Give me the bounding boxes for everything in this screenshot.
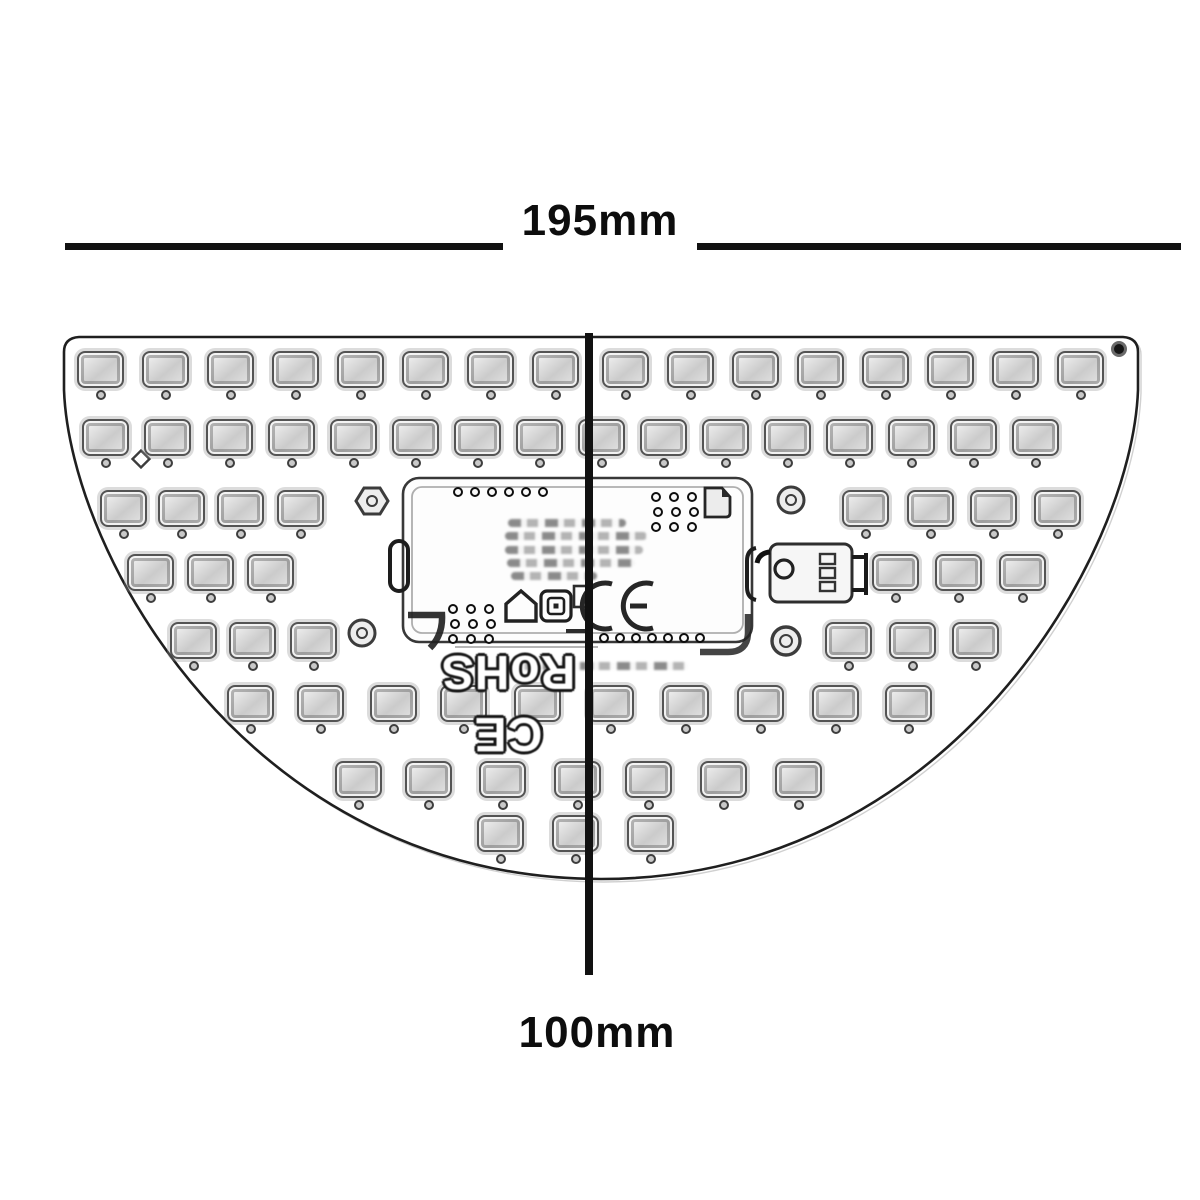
led-pad — [825, 622, 872, 659]
via-hole — [599, 633, 609, 643]
via-hole — [538, 487, 548, 497]
led-pad — [207, 351, 254, 388]
led-pad — [227, 685, 274, 722]
via-hole — [695, 633, 705, 643]
led-pad — [862, 351, 909, 388]
led-pad — [290, 622, 337, 659]
led-pad — [335, 761, 382, 798]
led-pad — [640, 419, 687, 456]
via-hole — [669, 522, 679, 532]
led-pad — [82, 419, 129, 456]
led-pad — [100, 490, 147, 527]
led-pad — [702, 419, 749, 456]
via-hole — [486, 619, 496, 629]
via-hole — [687, 492, 697, 502]
via-hole — [631, 633, 641, 643]
led-pad — [187, 554, 234, 591]
led-pad — [1034, 490, 1081, 527]
led-pad — [700, 761, 747, 798]
led-pad — [127, 554, 174, 591]
led-pad — [229, 622, 276, 659]
led-pad — [516, 419, 563, 456]
via-hole — [689, 507, 699, 517]
led-pad — [952, 622, 999, 659]
led-pad — [532, 351, 579, 388]
silkscreen-ce-rohs: CE RoHS — [402, 702, 614, 764]
led-pad — [872, 554, 919, 591]
led-pad — [206, 419, 253, 456]
via-hole — [663, 633, 673, 643]
led-pad — [554, 761, 601, 798]
via-hole — [687, 522, 697, 532]
led-pad — [77, 351, 124, 388]
led-pad — [268, 419, 315, 456]
via-hole — [647, 633, 657, 643]
led-pad — [907, 490, 954, 527]
led-pad — [885, 685, 932, 722]
led-pad — [602, 351, 649, 388]
led-pad — [277, 490, 324, 527]
via-hole — [671, 507, 681, 517]
via-hole — [679, 633, 689, 643]
led-pad — [935, 554, 982, 591]
led-pad — [662, 685, 709, 722]
led-pad — [144, 419, 191, 456]
via-hole — [615, 633, 625, 643]
led-pad — [826, 419, 873, 456]
led-pad — [479, 761, 526, 798]
via-hole — [484, 604, 494, 614]
led-pad — [812, 685, 859, 722]
driver-label-text — [505, 532, 647, 540]
led-pad — [888, 419, 935, 456]
via-hole — [521, 487, 531, 497]
via-hole — [466, 604, 476, 614]
via-hole — [504, 487, 514, 497]
height-dimension-line — [585, 333, 593, 975]
led-pad — [764, 419, 811, 456]
led-pad — [842, 490, 889, 527]
via-hole — [448, 604, 458, 614]
led-pad — [889, 622, 936, 659]
via-hole — [669, 492, 679, 502]
led-pad — [732, 351, 779, 388]
led-pad — [467, 351, 514, 388]
led-pad — [927, 351, 974, 388]
via-hole — [651, 522, 661, 532]
width-dimension-label: 195mm — [450, 196, 750, 246]
led-pad — [797, 351, 844, 388]
driver-label-text — [507, 559, 635, 567]
via-hole — [487, 487, 497, 497]
led-pad — [625, 761, 672, 798]
led-pad — [247, 554, 294, 591]
led-pad — [775, 761, 822, 798]
via-hole — [470, 487, 480, 497]
driver-label-text — [508, 519, 626, 527]
led-pad — [999, 554, 1046, 591]
led-pad — [170, 622, 217, 659]
led-pad — [392, 419, 439, 456]
led-pad — [405, 761, 452, 798]
led-pad — [158, 490, 205, 527]
led-pad — [454, 419, 501, 456]
width-dimension-line-right — [697, 243, 1181, 250]
led-pad — [992, 351, 1039, 388]
led-pad — [217, 490, 264, 527]
led-pad — [477, 815, 524, 852]
led-pad — [970, 490, 1017, 527]
led-pad — [337, 351, 384, 388]
via-hole — [653, 507, 663, 517]
led-pad — [667, 351, 714, 388]
led-pad — [402, 351, 449, 388]
diagram-canvas: CE RoHS 195mm 100mm — [0, 0, 1200, 1200]
led-pad — [1057, 351, 1104, 388]
via-hole — [651, 492, 661, 502]
led-pad — [950, 419, 997, 456]
height-dimension-label: 100mm — [447, 1008, 747, 1058]
via-hole — [453, 487, 463, 497]
driver-label-text — [505, 546, 643, 554]
led-pad — [627, 815, 674, 852]
led-pad — [737, 685, 784, 722]
led-pad — [272, 351, 319, 388]
led-pad — [297, 685, 344, 722]
led-pad — [142, 351, 189, 388]
via-hole — [468, 619, 478, 629]
led-pad — [330, 419, 377, 456]
led-pad — [1012, 419, 1059, 456]
via-hole — [450, 619, 460, 629]
width-dimension-line-left — [65, 243, 503, 250]
